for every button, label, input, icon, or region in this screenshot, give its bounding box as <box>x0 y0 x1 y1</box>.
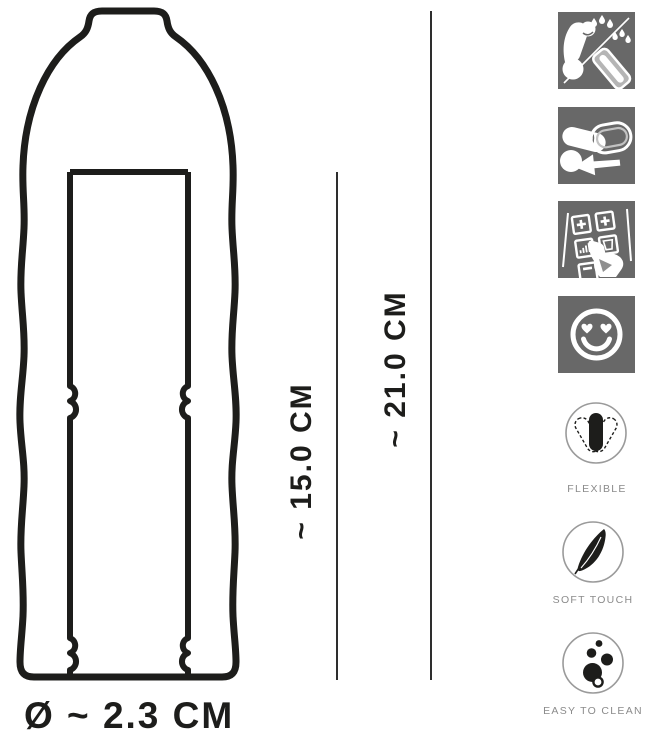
feature-flexible-label: FLEXIBLE <box>567 483 626 495</box>
inner-length-label: ~ 15.0 CM <box>285 382 319 539</box>
apply-lubricant-icon <box>558 12 635 89</box>
heart-eyes-smiley-icon <box>558 296 635 373</box>
feature-flexible <box>561 398 631 468</box>
total-length-label: ~ 21.0 CM <box>379 290 413 447</box>
lube-drops-penis <box>591 15 613 28</box>
slide-on-sleeve-icon <box>558 107 635 184</box>
product-dimension-infographic: ~ 15.0 CM ~ 21.0 CM Ø ~ 2.3 CM <box>0 0 658 740</box>
feature-soft-touch-label: SOFT TOUCH <box>553 594 634 606</box>
flexible-sleeve-icon <box>561 398 631 468</box>
feature-easy-to-clean-label: EASY TO CLEAN <box>543 705 643 717</box>
feature-soft-touch <box>558 517 628 587</box>
select-options-icon <box>558 201 635 278</box>
bubbles-icon <box>558 628 628 698</box>
feather-icon <box>558 517 628 587</box>
sleeve-outer-outline <box>20 11 236 677</box>
sleeve-with-lube <box>591 47 632 89</box>
feature-easy-to-clean <box>558 628 628 698</box>
diameter-label: Ø ~ 2.3 CM <box>24 695 234 737</box>
